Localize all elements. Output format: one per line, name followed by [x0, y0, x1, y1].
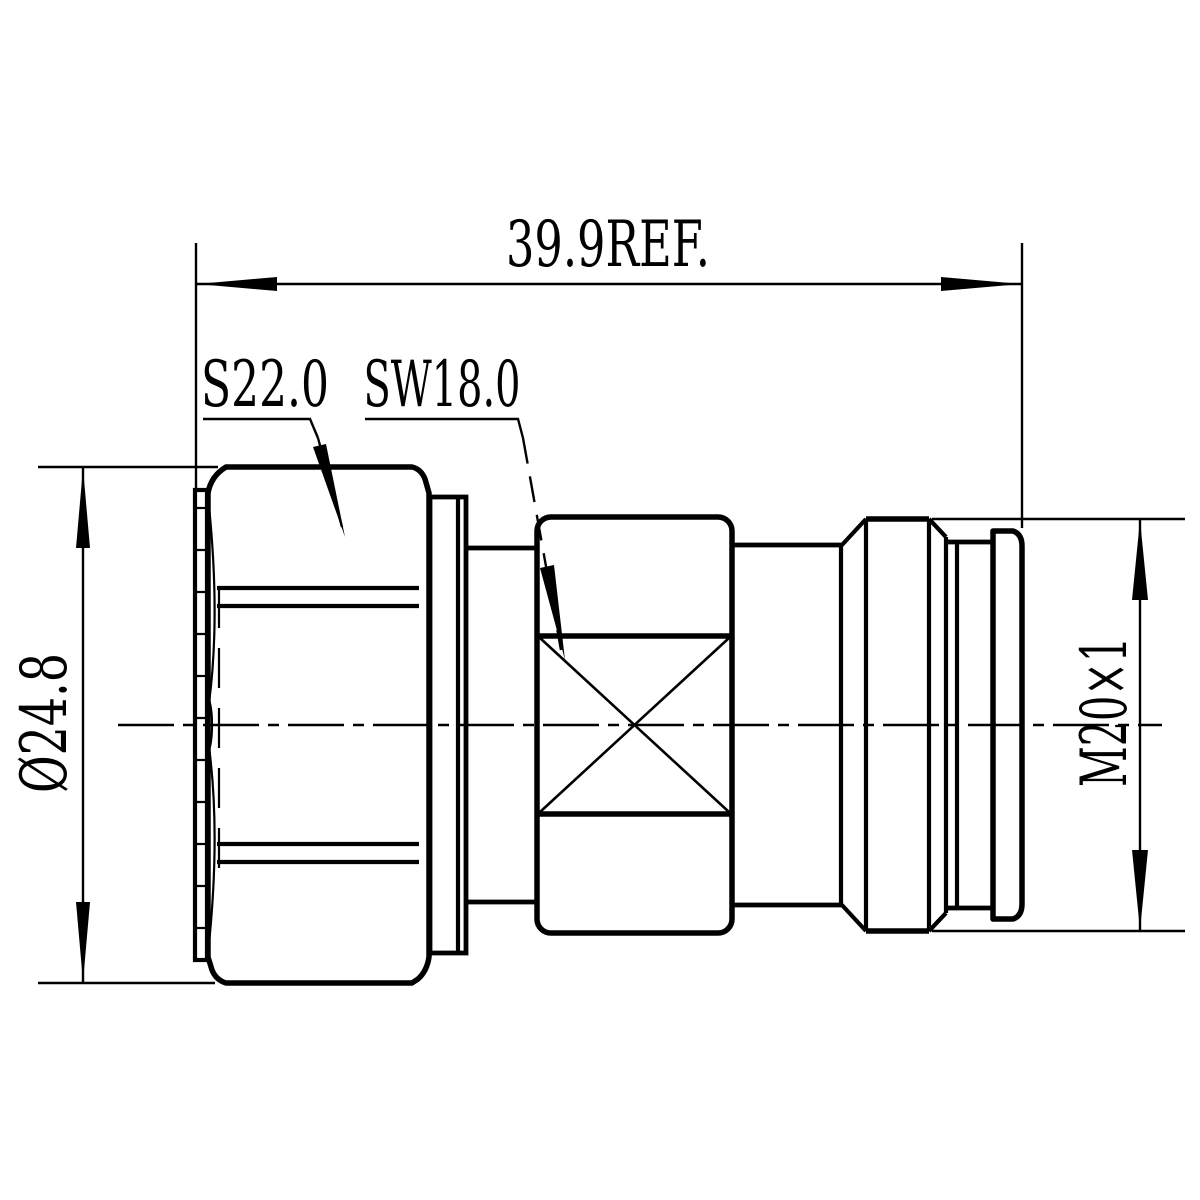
thread-spec-text: M20×1	[1068, 637, 1142, 787]
overall-length-text: 39.9REF.	[506, 208, 710, 282]
wrench-size-text: SW18.0	[364, 348, 521, 422]
outer-diameter-text: Ø24.8	[8, 653, 82, 793]
technical-drawing-canvas: 39.9REF. Ø24.8 M20×1 S22.0 SW18.0	[0, 0, 1200, 1200]
engineering-drawing: 39.9REF. Ø24.8 M20×1 S22.0 SW18.0	[0, 0, 1200, 1200]
hex-size-text: S22.0	[201, 348, 329, 422]
